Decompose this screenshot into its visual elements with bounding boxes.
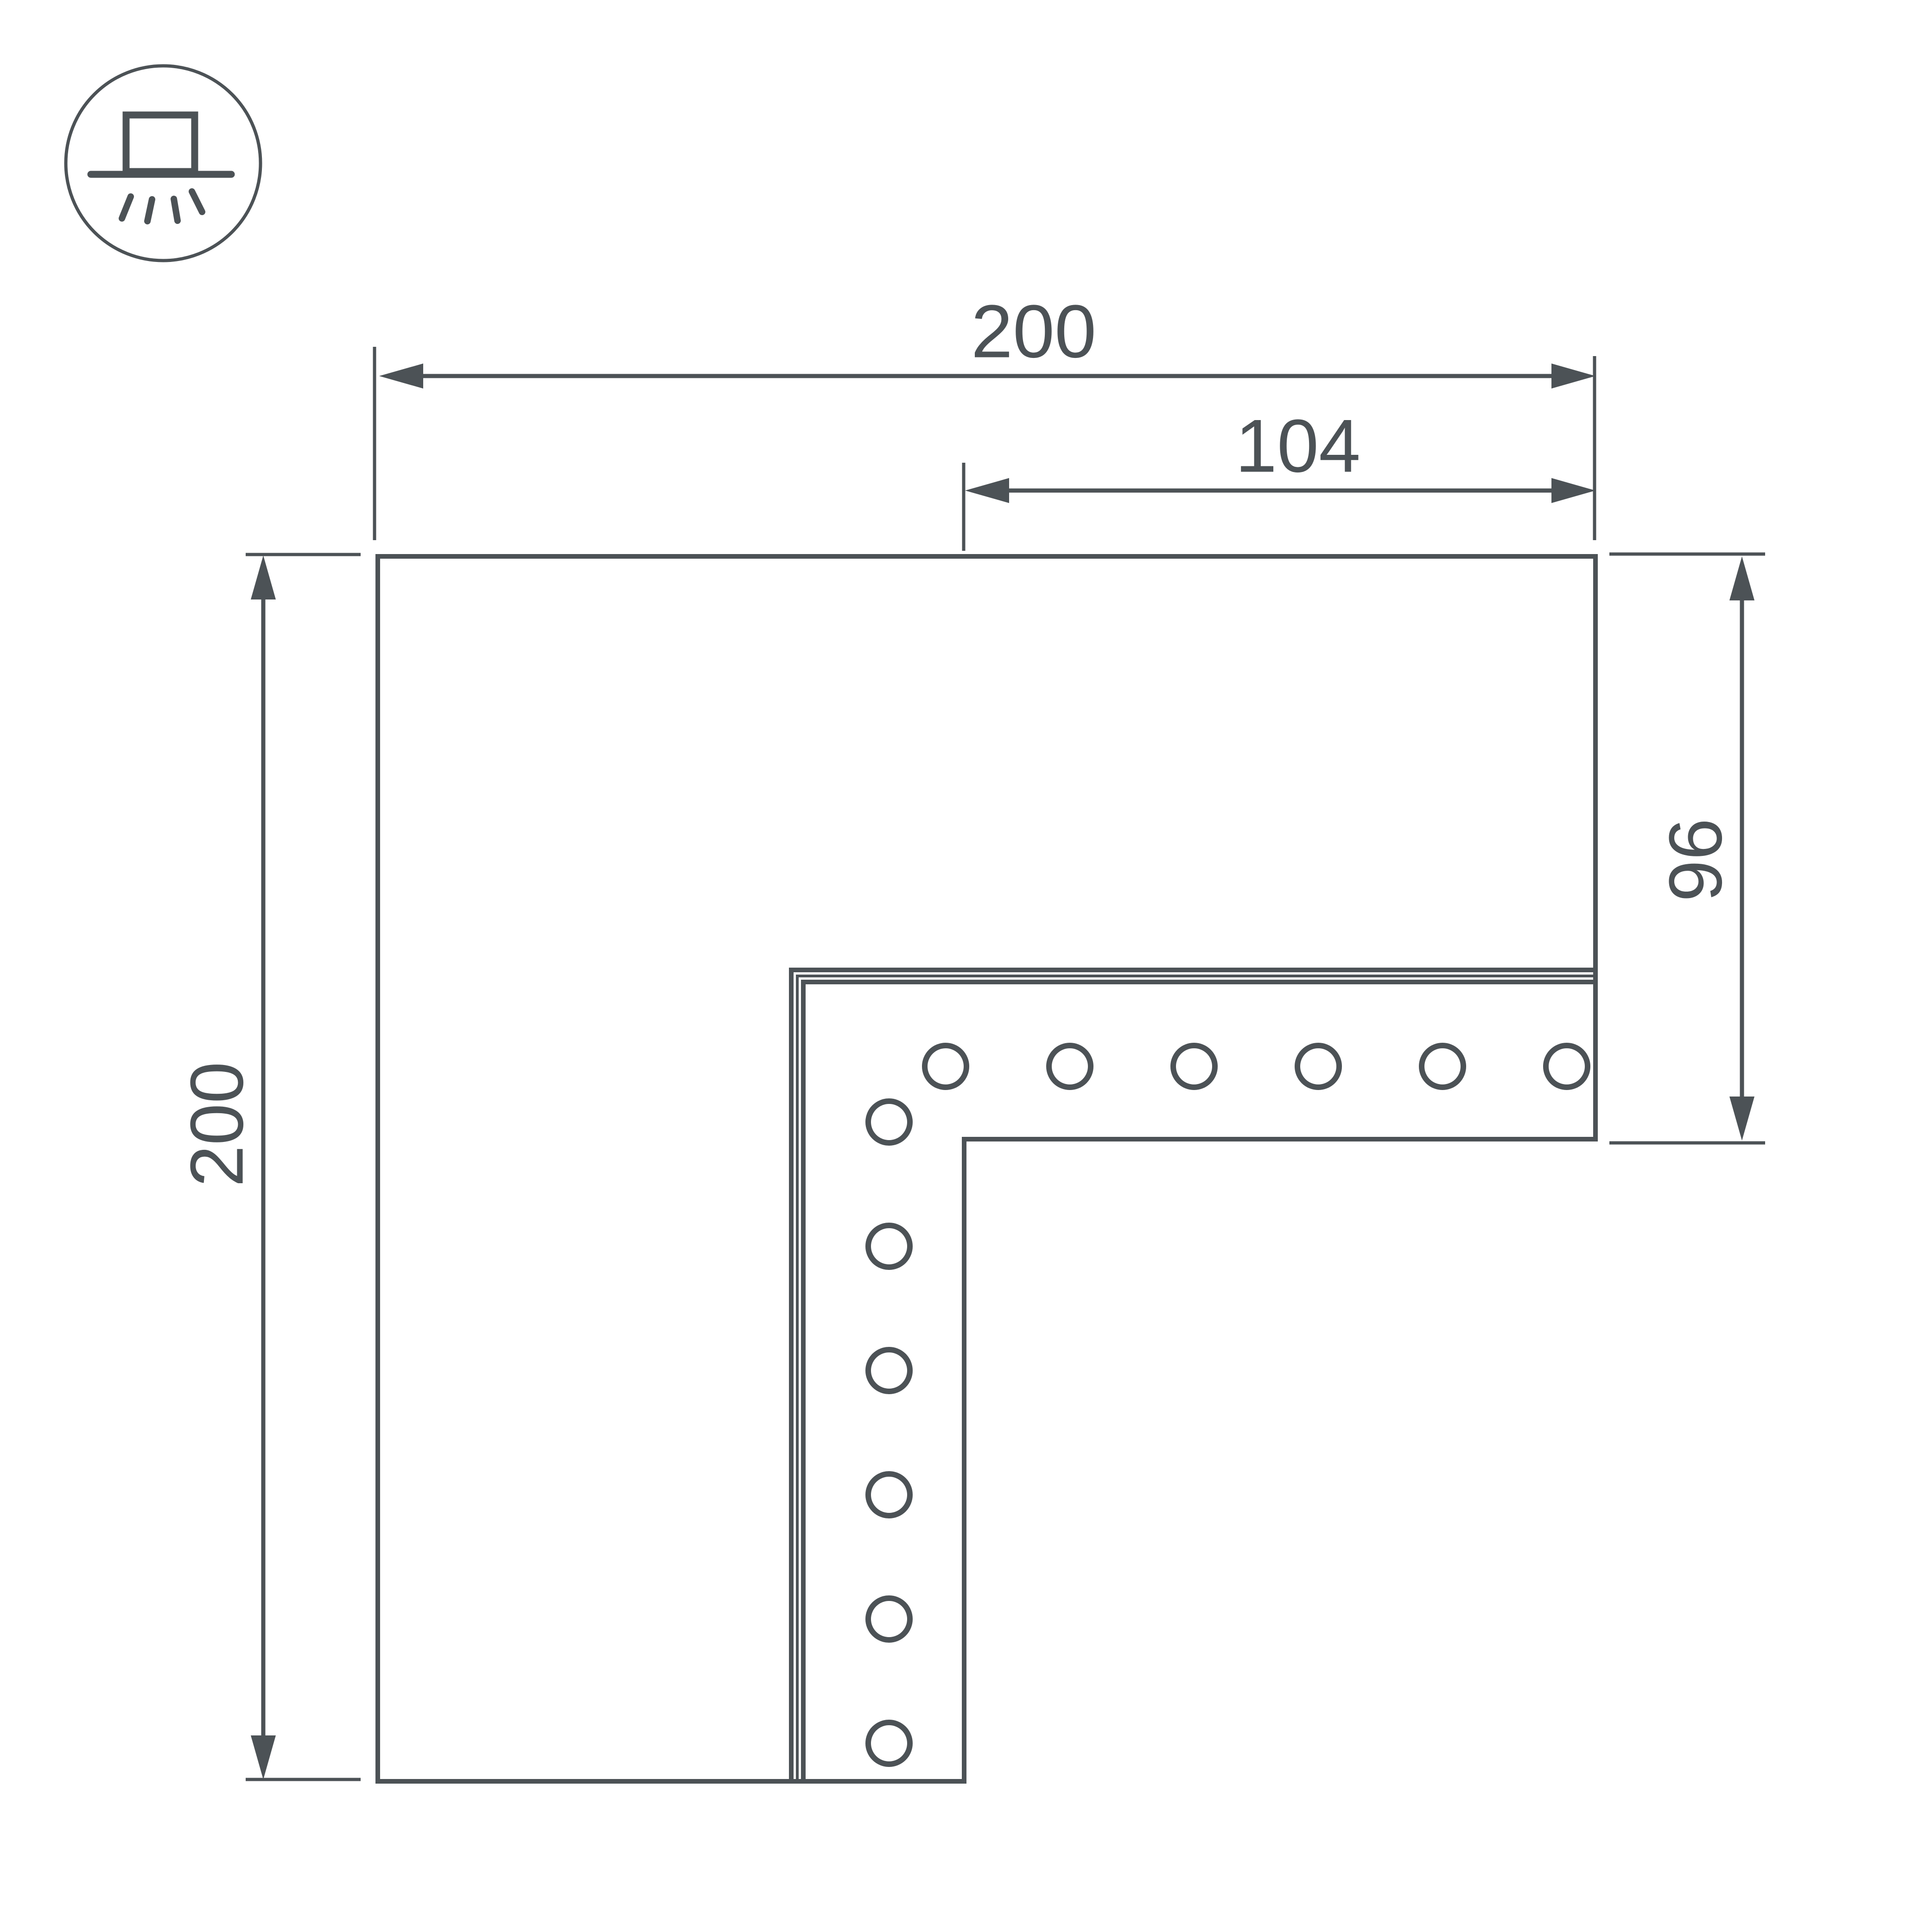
drawing-page: 200 104 200 96: [0, 0, 1932, 1932]
dimension-right-height: 96: [1609, 554, 1765, 1143]
part-outline: [378, 556, 1595, 1781]
hole: [868, 1598, 910, 1640]
dimension-left-height: 200: [175, 555, 361, 1779]
hole: [868, 1722, 910, 1764]
part-outer-boundary: [378, 556, 1595, 1781]
recessed-downlight-icon: [66, 66, 261, 261]
arrowhead-left: [379, 363, 423, 389]
hole: [1049, 1046, 1091, 1087]
dimension-label: 96: [1654, 818, 1738, 902]
hole: [1297, 1046, 1339, 1087]
arrowhead-bottom: [1729, 1097, 1754, 1141]
arrowhead-left: [965, 478, 1009, 503]
hole: [1173, 1046, 1215, 1087]
dimension-top-width: 200: [375, 290, 1595, 541]
arrowhead-top: [1729, 556, 1754, 600]
hole: [1546, 1046, 1588, 1087]
arrowhead-bottom: [251, 1735, 276, 1779]
icon-circle-border: [66, 66, 261, 261]
dimension-label: 200: [971, 290, 1096, 374]
hole: [868, 1350, 910, 1391]
strip-edge-middle: [797, 976, 1593, 1779]
icon-fixture-box: [126, 115, 195, 172]
hole: [868, 1474, 910, 1516]
dimension-label: 104: [1235, 404, 1360, 488]
arrowhead-right: [1551, 363, 1595, 389]
technical-drawing-canvas: 200 104 200 96: [0, 0, 1932, 1932]
hole: [868, 1225, 910, 1267]
arrowhead-top: [251, 555, 276, 599]
dimension-label: 200: [175, 1062, 259, 1187]
dimension-inner-width: 104: [964, 404, 1595, 551]
mounting-holes: [868, 1046, 1588, 1764]
hole: [1422, 1046, 1463, 1087]
hole: [868, 1101, 910, 1143]
strip-edge-inner: [803, 982, 1593, 1779]
hole: [925, 1046, 966, 1087]
icon-light-rays: [122, 191, 202, 221]
arrowhead-right: [1551, 478, 1595, 503]
